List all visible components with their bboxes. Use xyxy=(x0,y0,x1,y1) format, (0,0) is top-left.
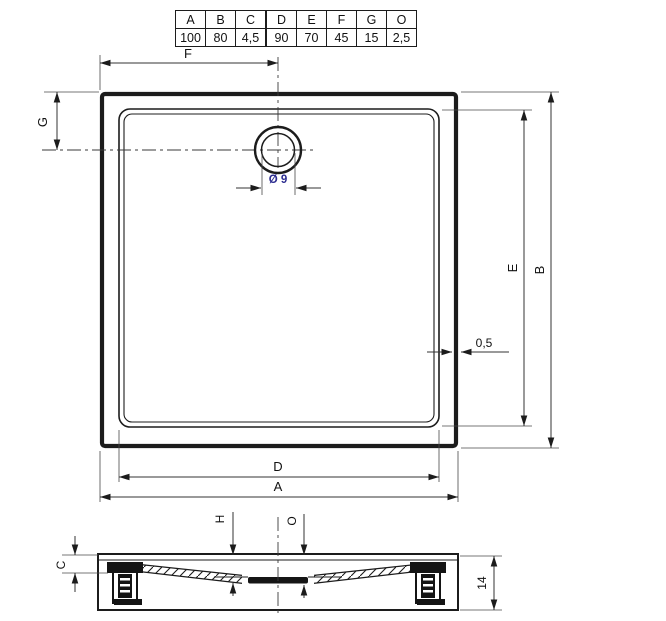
dim-f: F xyxy=(100,46,278,90)
dim-label-f: F xyxy=(184,46,192,61)
tray-inner-edge-inner xyxy=(124,114,434,422)
dim-label-o: O xyxy=(285,516,299,525)
tray-inner-edge-outer xyxy=(119,109,439,427)
dim-label-b: B xyxy=(532,266,547,275)
section-view-drawing: C H O 14 xyxy=(54,512,502,616)
dim-label-wall-thickness: 0,5 xyxy=(476,336,493,350)
dim-label-total-height: 14 xyxy=(475,576,489,590)
dim-drain-diameter: Ø 9 xyxy=(236,153,321,195)
dim-label-e: E xyxy=(505,263,520,272)
top-view-drawing: F G Ø 9 E xyxy=(35,46,559,502)
adjustable-foot-right xyxy=(410,562,446,605)
dim-d: D xyxy=(119,430,439,482)
dim-label-a: A xyxy=(274,479,283,494)
dim-label-c: C xyxy=(54,560,68,569)
dim-c: C xyxy=(54,536,108,592)
dim-label-d: D xyxy=(273,459,282,474)
dim-label-g: G xyxy=(35,117,50,127)
adjustable-foot-left xyxy=(107,562,143,605)
dim-label-h: H xyxy=(213,515,227,524)
technical-drawing-page: A B C D E F G O 100 80 4,5 90 70 45 15 2… xyxy=(0,0,666,621)
tray-outer-rim xyxy=(102,94,456,446)
drawing-canvas: F G Ø 9 E xyxy=(0,0,666,621)
dim-total-height: 14 xyxy=(460,556,502,610)
dim-g: G xyxy=(35,92,99,150)
dim-label-drain-diameter: Ø 9 xyxy=(269,174,288,186)
